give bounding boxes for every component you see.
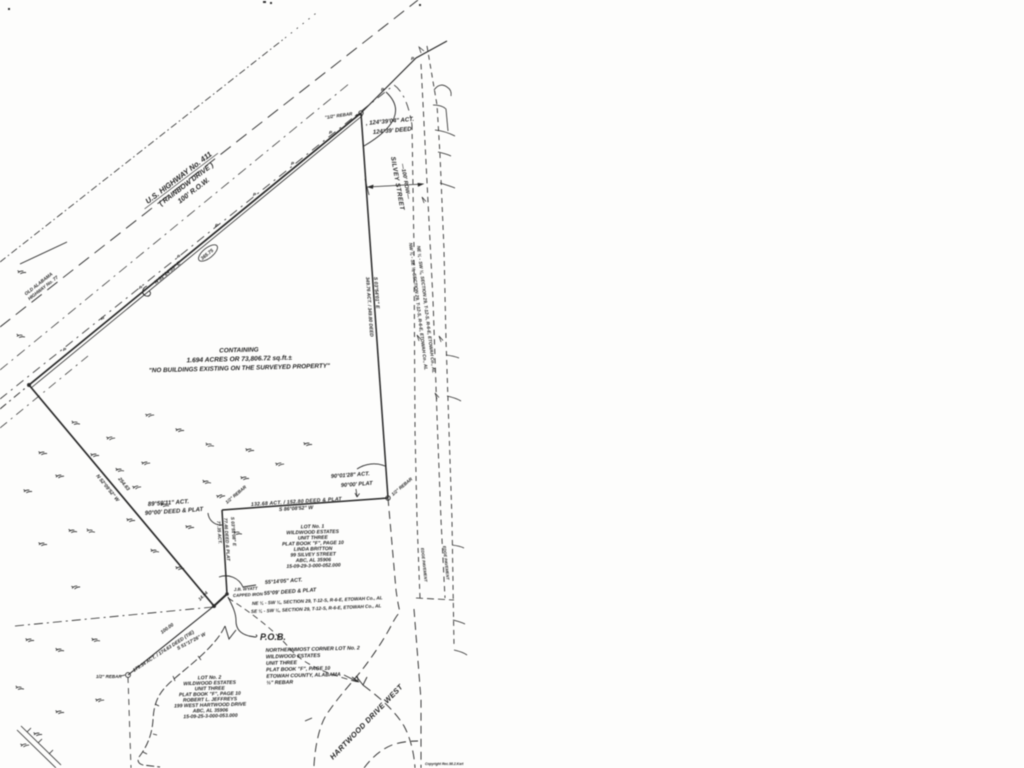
svg-text:1/2" REBAR: 1/2" REBAR: [224, 484, 247, 505]
svg-text:55°09' DEED & PLAT: 55°09' DEED & PLAT: [264, 587, 317, 597]
svg-text:ETOWAH COUNTY, ALABAMA: ETOWAH COUNTY, ALABAMA: [266, 672, 341, 680]
svg-text:14.94: 14.94: [197, 590, 209, 602]
svg-text:15-09-25-3-000-053.000: 15-09-25-3-000-053.000: [183, 713, 238, 720]
svg-text:90°01'28" ACT.: 90°01'28" ACT.: [331, 471, 371, 480]
svg-text:CONTAINING: CONTAINING: [219, 346, 259, 354]
svg-text:P: P: [291, 161, 295, 166]
svg-text:P: P: [139, 285, 143, 290]
svg-text:89°59'11" ACT.: 89°59'11" ACT.: [148, 499, 190, 508]
svg-text:P: P: [177, 254, 181, 259]
svg-text:P: P: [215, 223, 219, 228]
svg-text:"NO BUILDINGS EXISTING ON THE: "NO BUILDINGS EXISTING ON THE SURVEYED P…: [149, 363, 331, 375]
svg-text:179.34 ACT. / 174.63 DEED (TIE: 179.34 ACT. / 174.63 DEED (TIE): [132, 629, 196, 673]
svg-text:CAPPED IRON: CAPPED IRON: [233, 591, 264, 598]
svg-text:1/2" REBAR: 1/2" REBAR: [96, 674, 122, 679]
svg-text:"1/2" REBAR: "1/2" REBAR: [324, 111, 353, 120]
svg-text:EDGE PAVEMENT: EDGE PAVEMENT: [420, 548, 429, 583]
svg-text:77.35 ACT.: 77.35 ACT.: [216, 521, 223, 545]
svg-text:P: P: [253, 192, 257, 197]
svg-text:HARTWOOD DRIVE WEST: HARTWOOD DRIVE WEST: [328, 682, 405, 762]
svg-text:P: P: [63, 347, 67, 352]
svg-text:124°39' DEED: 124°39' DEED: [373, 127, 413, 136]
svg-text:1.694 ACRES OR 73,806.72 sq.ft: 1.694 ACRES OR 73,806.72 sq.ft.±: [186, 355, 292, 365]
svg-text:254.63: 254.63: [116, 476, 131, 493]
svg-text:½" REBAR: ½" REBAR: [266, 679, 293, 687]
svg-text:90°00' PLAT: 90°00' PLAT: [341, 481, 374, 489]
svg-text:P.O.B.: P.O.B.: [260, 632, 286, 642]
svg-text:55°14'05" ACT.: 55°14'05" ACT.: [265, 577, 303, 586]
svg-text:S 86°08'52" W: S 86°08'52" W: [279, 505, 315, 513]
svg-text:Copyright Rec.98.2.Kart: Copyright Rec.98.2.Kart: [425, 762, 464, 766]
svg-text:90°00' DEED & PLAT: 90°00' DEED & PLAT: [145, 507, 205, 517]
svg-text:1/2" REBAR: 1/2" REBAR: [390, 476, 413, 497]
svg-text:100.00: 100.00: [160, 622, 176, 636]
svg-text:EDGE PAVEMENT: EDGE PAVEMENT: [442, 546, 451, 581]
svg-text:P: P: [101, 316, 105, 321]
svg-text:15-09-29-3-000-052.000: 15-09-29-3-000-052.000: [286, 562, 341, 569]
svg-text:N 51°24'55" E: N 51°24'55" E: [153, 260, 182, 285]
svg-text:S 03°54'01" E: S 03°54'01" E: [372, 277, 380, 310]
